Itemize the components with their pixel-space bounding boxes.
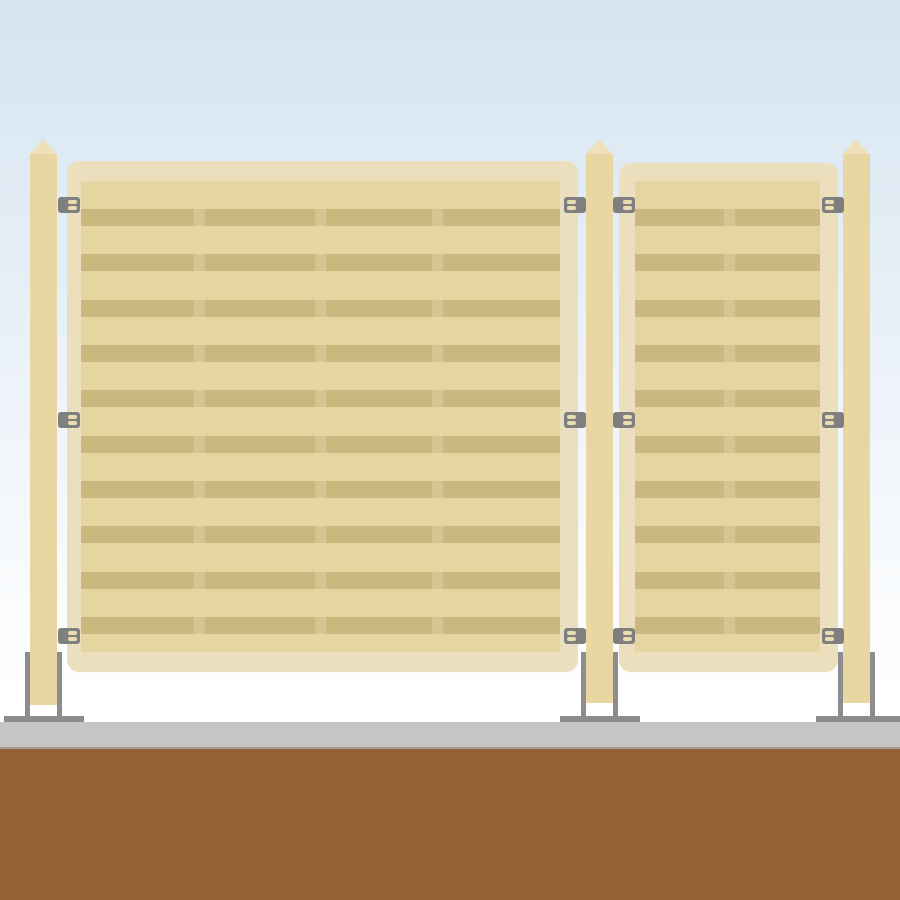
slat-row xyxy=(635,526,820,543)
bracket-slot xyxy=(68,631,77,635)
base-plate xyxy=(4,716,84,722)
slat xyxy=(326,436,432,453)
slat xyxy=(326,526,432,543)
bracket-slot xyxy=(68,415,77,419)
slat-row xyxy=(81,617,560,634)
slat xyxy=(735,481,820,498)
slat xyxy=(81,572,194,589)
slat xyxy=(635,436,724,453)
slat xyxy=(735,617,820,634)
bracket-slot xyxy=(825,200,834,204)
slat xyxy=(205,390,315,407)
slat xyxy=(205,436,315,453)
slat xyxy=(205,481,315,498)
bracket-slot xyxy=(68,200,77,204)
fence-post xyxy=(586,154,613,703)
slat xyxy=(326,300,432,317)
slat-row xyxy=(635,390,820,407)
mounting-bracket xyxy=(613,197,635,213)
anchor-rod xyxy=(870,652,875,717)
slat-row xyxy=(81,300,560,317)
mounting-bracket xyxy=(822,628,844,644)
slat xyxy=(81,526,194,543)
slat xyxy=(735,436,820,453)
anchor-rod xyxy=(25,652,30,717)
slat xyxy=(635,526,724,543)
slat xyxy=(735,300,820,317)
base-plate xyxy=(560,716,640,722)
slat xyxy=(443,572,560,589)
slat xyxy=(81,617,194,634)
slat xyxy=(443,300,560,317)
slat xyxy=(635,345,724,362)
anchor-rod xyxy=(838,652,843,717)
slat xyxy=(735,254,820,271)
slat xyxy=(635,254,724,271)
mounting-bracket xyxy=(564,412,586,428)
soil-ground xyxy=(0,749,900,900)
slat-row xyxy=(81,481,560,498)
left-panel-boards xyxy=(81,181,560,652)
slat xyxy=(326,481,432,498)
slat xyxy=(635,300,724,317)
left-panel-frame xyxy=(67,161,578,672)
slat-row xyxy=(81,390,560,407)
slat xyxy=(205,254,315,271)
slat xyxy=(326,254,432,271)
mounting-bracket xyxy=(58,628,80,644)
mounting-bracket xyxy=(822,197,844,213)
slat xyxy=(326,345,432,362)
right-panel-frame xyxy=(619,163,838,672)
mounting-bracket xyxy=(613,628,635,644)
bracket-slot xyxy=(825,631,834,635)
slat-row xyxy=(81,209,560,226)
bracket-slot xyxy=(623,631,632,635)
fence-illustration xyxy=(0,0,900,900)
bracket-slot xyxy=(68,637,77,641)
mounting-bracket xyxy=(822,412,844,428)
slat xyxy=(443,254,560,271)
bracket-slot xyxy=(623,415,632,419)
slat xyxy=(735,526,820,543)
bracket-slot xyxy=(825,206,834,210)
bracket-slot xyxy=(825,415,834,419)
fence-post xyxy=(843,154,870,703)
slat xyxy=(205,300,315,317)
mounting-bracket xyxy=(564,628,586,644)
right-panel-boards xyxy=(635,181,820,652)
slat xyxy=(326,390,432,407)
slat-row xyxy=(635,254,820,271)
base-plate xyxy=(816,716,900,722)
mounting-bracket xyxy=(58,412,80,428)
slat-row xyxy=(635,481,820,498)
anchor-rod xyxy=(57,652,62,717)
slat xyxy=(735,209,820,226)
slat xyxy=(735,345,820,362)
slat-row xyxy=(81,345,560,362)
slat xyxy=(81,209,194,226)
slat xyxy=(635,390,724,407)
post-cap-icon xyxy=(586,139,612,154)
slat xyxy=(81,436,194,453)
bracket-slot xyxy=(567,200,576,204)
mounting-bracket xyxy=(564,197,586,213)
slat xyxy=(443,617,560,634)
slat xyxy=(326,572,432,589)
slat xyxy=(443,436,560,453)
bracket-slot xyxy=(68,421,77,425)
slat-row xyxy=(81,254,560,271)
slat xyxy=(205,617,315,634)
slat-row xyxy=(635,300,820,317)
bracket-slot xyxy=(68,206,77,210)
anchor-rod xyxy=(613,652,618,717)
bracket-slot xyxy=(623,421,632,425)
bracket-slot xyxy=(825,637,834,641)
slat xyxy=(205,572,315,589)
post-cap-icon xyxy=(30,139,56,154)
slat xyxy=(326,209,432,226)
slat-row xyxy=(635,209,820,226)
slat xyxy=(735,572,820,589)
concrete-footing xyxy=(0,722,900,747)
bracket-slot xyxy=(567,206,576,210)
slat xyxy=(635,209,724,226)
slat xyxy=(443,345,560,362)
slat-row xyxy=(81,436,560,453)
bracket-slot xyxy=(623,637,632,641)
slat xyxy=(205,209,315,226)
slat xyxy=(81,300,194,317)
mounting-bracket xyxy=(58,197,80,213)
slat xyxy=(443,209,560,226)
slat-row xyxy=(81,526,560,543)
slat xyxy=(443,526,560,543)
post-cap-icon xyxy=(843,139,869,154)
slat xyxy=(81,481,194,498)
slat-row xyxy=(635,345,820,362)
slat xyxy=(443,390,560,407)
slat xyxy=(635,481,724,498)
bracket-slot xyxy=(567,637,576,641)
slat xyxy=(735,390,820,407)
fence-post xyxy=(30,154,57,705)
bracket-slot xyxy=(825,421,834,425)
mounting-bracket xyxy=(613,412,635,428)
bracket-slot xyxy=(567,631,576,635)
slat xyxy=(326,617,432,634)
slat xyxy=(205,345,315,362)
bracket-slot xyxy=(567,421,576,425)
bracket-slot xyxy=(623,200,632,204)
slat xyxy=(81,345,194,362)
slat-row xyxy=(81,572,560,589)
slat-row xyxy=(635,572,820,589)
bracket-slot xyxy=(623,206,632,210)
slat xyxy=(81,390,194,407)
slat-row xyxy=(635,436,820,453)
slat xyxy=(205,526,315,543)
slat-row xyxy=(635,617,820,634)
slat xyxy=(81,254,194,271)
slat xyxy=(635,572,724,589)
bracket-slot xyxy=(567,415,576,419)
anchor-rod xyxy=(581,652,586,717)
slat xyxy=(443,481,560,498)
slat xyxy=(635,617,724,634)
